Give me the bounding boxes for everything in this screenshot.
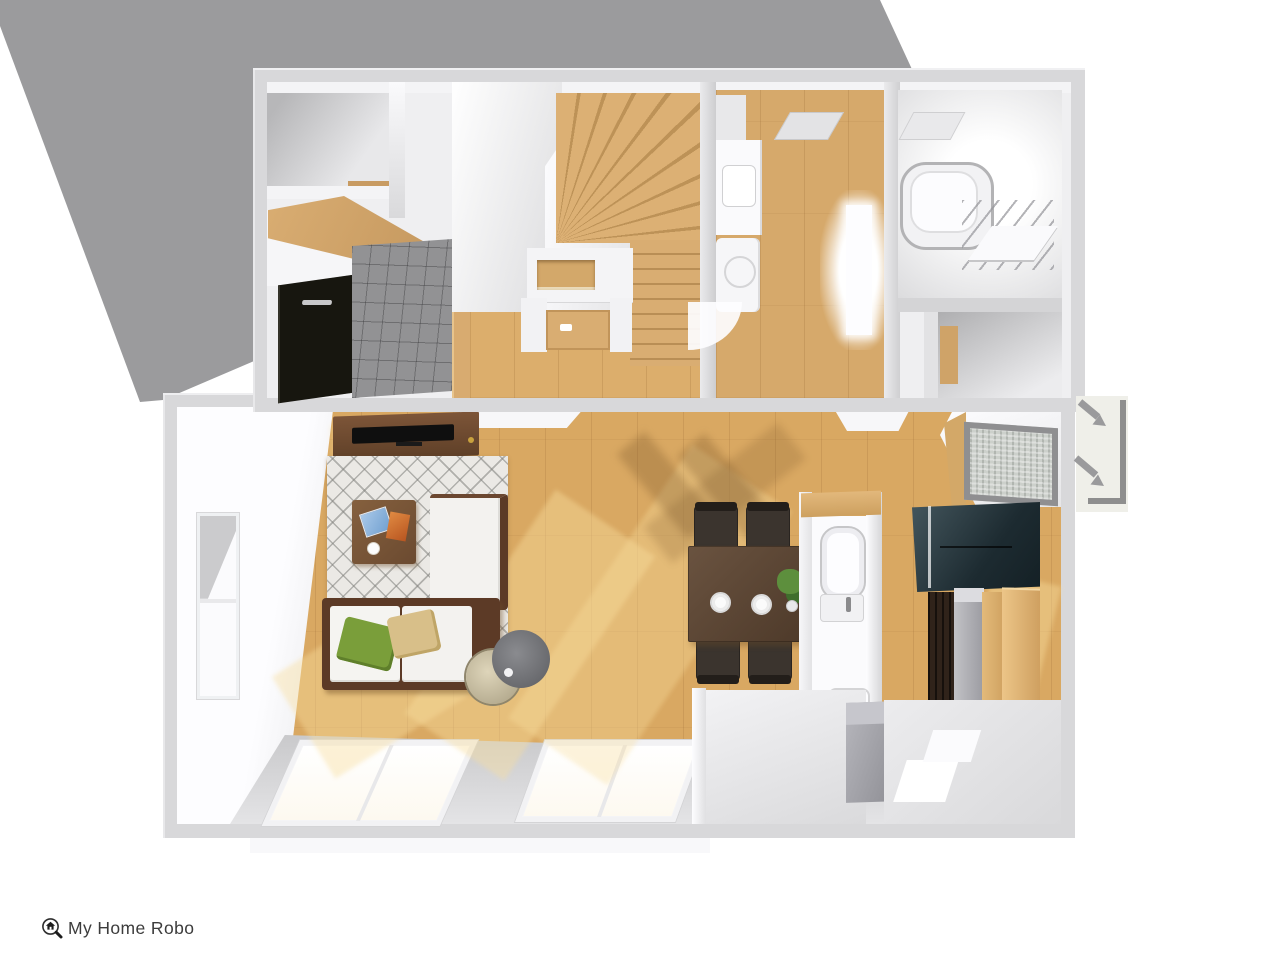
wall-niche-opening bbox=[537, 260, 595, 290]
entry-front-door bbox=[278, 275, 354, 404]
vanity-basin bbox=[722, 165, 756, 207]
bathroom-south-wall bbox=[898, 298, 1062, 312]
cabinet-handle-line bbox=[940, 546, 1012, 548]
toilet-tank bbox=[820, 594, 864, 622]
dining-chair bbox=[746, 505, 790, 552]
dining-table bbox=[688, 546, 802, 642]
toilet-tank-faucet bbox=[846, 597, 851, 612]
toilet-room-wood-cap-wall bbox=[801, 491, 881, 518]
storage-room-right-wall bbox=[389, 82, 405, 218]
plant-pot bbox=[786, 600, 798, 612]
rear-hall-floor bbox=[706, 690, 866, 824]
kitchen-window bbox=[964, 422, 1058, 507]
rear-hall-wall bbox=[692, 688, 706, 824]
floor-lamp-finial bbox=[504, 668, 513, 677]
app-logo: My Home Robo bbox=[40, 916, 194, 940]
genkan-tile-floor bbox=[352, 239, 454, 398]
storage-room-nw-floor bbox=[267, 93, 389, 189]
washroom-top-cabinet bbox=[716, 95, 746, 140]
chair-back bbox=[697, 675, 739, 684]
washer-drum bbox=[724, 256, 756, 288]
storage-se-wood-sliver bbox=[940, 326, 958, 384]
entry-direction-arrows bbox=[1072, 398, 1128, 498]
cabinet-seam bbox=[928, 506, 931, 588]
magnifier-house-icon bbox=[40, 916, 64, 940]
interior-door-jamb bbox=[521, 298, 547, 352]
living-left-window bbox=[197, 513, 239, 699]
window-pane-shadow bbox=[200, 516, 236, 599]
stair-right-wall bbox=[700, 82, 716, 398]
storage-room-bottom-wall bbox=[267, 186, 389, 199]
floor-lamp-shade bbox=[492, 630, 550, 688]
logo-text: My Home Robo bbox=[68, 918, 194, 939]
floorplan-render: My Home Robo bbox=[0, 0, 1280, 960]
interior-door-open bbox=[546, 310, 610, 350]
door-handle bbox=[302, 300, 332, 305]
small-plate-on-table bbox=[367, 542, 380, 555]
interior-door-jamb bbox=[610, 298, 632, 352]
toilet-bowl bbox=[820, 526, 866, 600]
sofa-chaise bbox=[430, 494, 508, 610]
window-mullion bbox=[200, 599, 236, 603]
porch-border-bottom bbox=[1088, 498, 1126, 504]
chair-back bbox=[695, 502, 737, 511]
interior-door-handle bbox=[560, 324, 572, 331]
washroom-window bbox=[846, 205, 872, 335]
tv-board-knob bbox=[468, 437, 474, 443]
dining-chair bbox=[694, 505, 738, 552]
tv-stand bbox=[396, 442, 422, 446]
outer-sill-strip bbox=[250, 838, 710, 853]
storage-se-left-wall bbox=[924, 312, 938, 398]
chair-back bbox=[747, 502, 789, 511]
table-plate bbox=[710, 592, 731, 613]
table-plate bbox=[751, 594, 772, 615]
chair-back bbox=[749, 675, 791, 684]
staircase-winder-treads bbox=[556, 93, 702, 243]
